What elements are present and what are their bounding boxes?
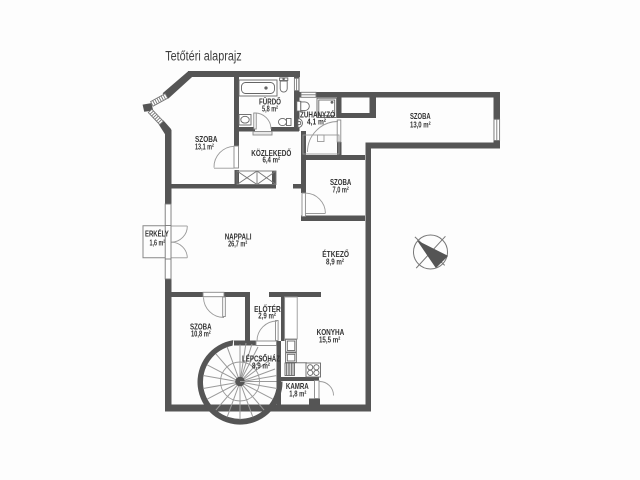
svg-text:ERKÉLY: ERKÉLY <box>145 229 169 239</box>
svg-text:4,1 m²: 4,1 m² <box>307 117 326 126</box>
svg-text:5,8 m²: 5,8 m² <box>262 104 278 113</box>
svg-text:8,9 m²: 8,9 m² <box>326 257 344 266</box>
svg-text:26,7 m²: 26,7 m² <box>228 239 247 248</box>
svg-text:10,8 m²: 10,8 m² <box>191 329 211 338</box>
svg-text:1,8 m²: 1,8 m² <box>289 389 306 398</box>
svg-text:1,6 m²: 1,6 m² <box>150 239 166 248</box>
svg-text:8,9 m²: 8,9 m² <box>252 361 270 370</box>
svg-text:2,9 m²: 2,9 m² <box>258 312 276 321</box>
svg-text:7,0 m²: 7,0 m² <box>333 185 349 194</box>
svg-text:15,5 m²: 15,5 m² <box>319 335 341 344</box>
svg-text:Tetőtéri alaprajz: Tetőtéri alaprajz <box>165 49 242 64</box>
svg-text:6,4 m²: 6,4 m² <box>263 156 281 165</box>
svg-text:13,1 m²: 13,1 m² <box>195 142 214 151</box>
svg-text:13,0 m²: 13,0 m² <box>410 121 431 130</box>
